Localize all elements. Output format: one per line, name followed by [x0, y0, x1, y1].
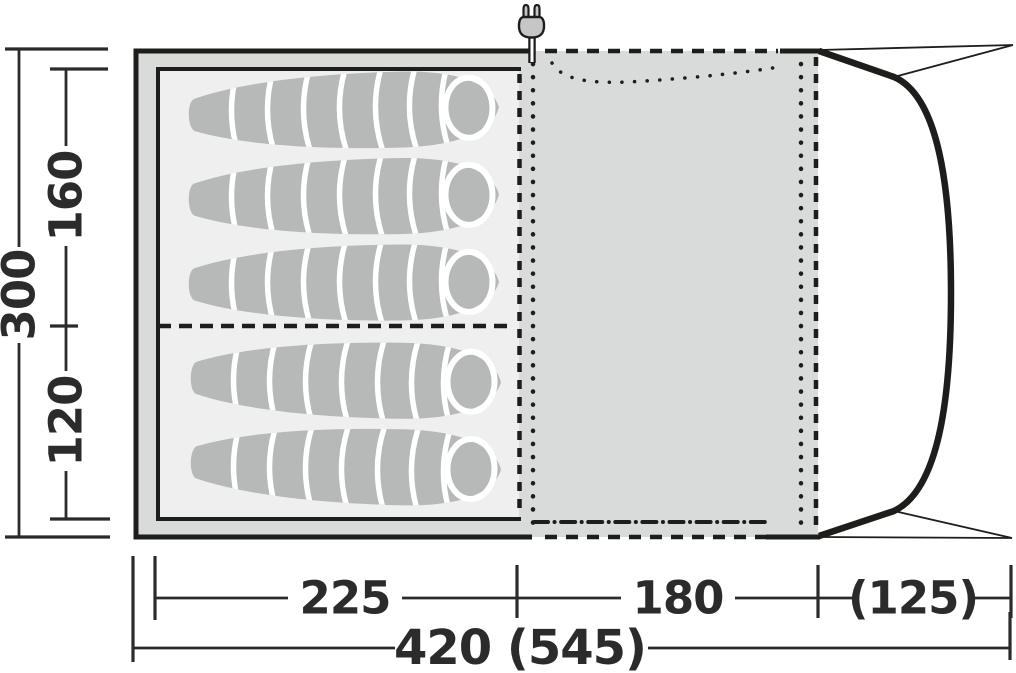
guy-line: [894, 511, 1012, 538]
guy-line: [819, 537, 1012, 538]
width-sleeping-label: 225: [300, 572, 391, 625]
width-living-label: 180: [633, 572, 724, 625]
depth-rear-label: 160: [40, 151, 93, 242]
width-total-label: 420 (545): [394, 620, 646, 673]
guy-lines: [819, 45, 1013, 538]
tent-floorplan-diagram: 300 160 120 225 180 (125) 420 (545): [0, 0, 1016, 673]
guy-line: [819, 45, 1013, 50]
depth-total-label: 300: [0, 250, 46, 341]
width-porch-label: (125): [848, 572, 978, 625]
guy-line: [894, 45, 1013, 77]
dim-width-segments: 225 180 (125): [155, 556, 1011, 625]
sleeping-bags: [188, 66, 502, 512]
porch-canopy-outline: [819, 51, 951, 536]
dim-depth-segments: 160 120: [40, 69, 111, 519]
tent-floorplan-svg: 300 160 120 225 180 (125) 420 (545): [0, 0, 1016, 673]
depth-front-label: 120: [40, 376, 93, 467]
